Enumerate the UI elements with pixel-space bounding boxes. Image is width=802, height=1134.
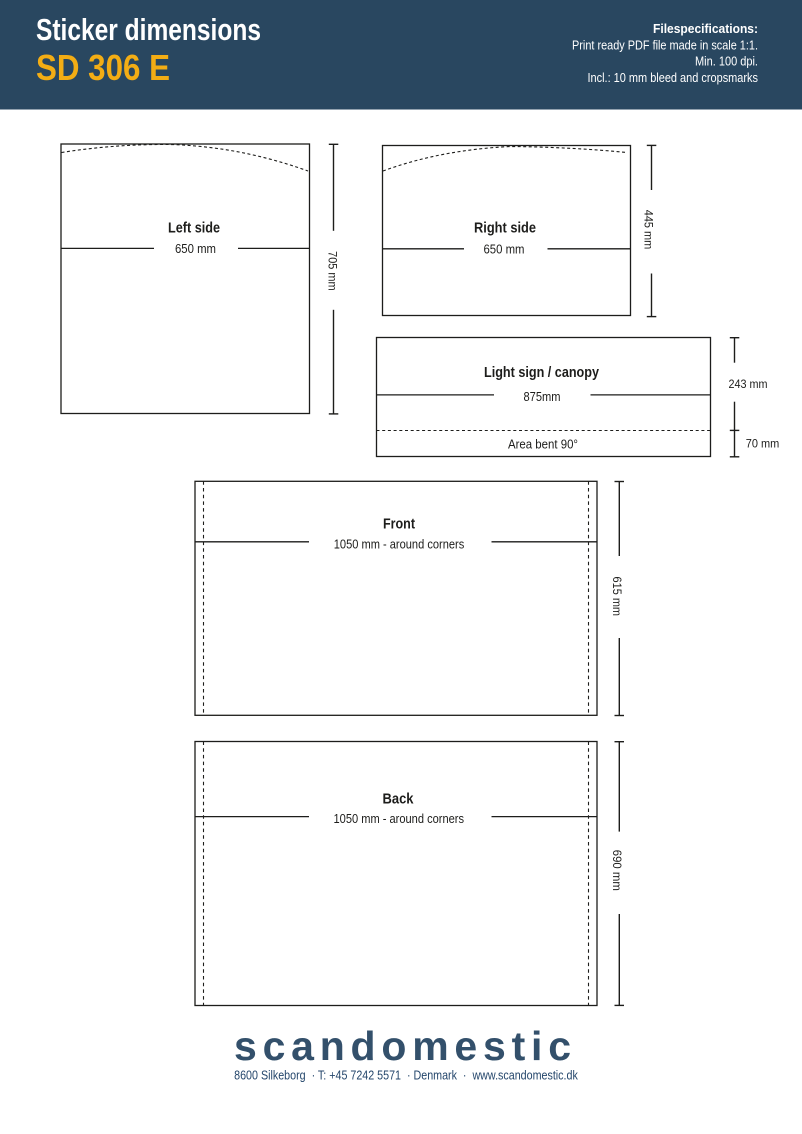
svg-text:SD 306 E: SD 306 E <box>36 47 170 88</box>
svg-text:875mm: 875mm <box>524 389 561 404</box>
svg-text:70 mm: 70 mm <box>746 437 780 451</box>
svg-text:Back: Back <box>383 790 415 807</box>
svg-text:690 mm: 690 mm <box>610 850 624 891</box>
svg-text:615 mm: 615 mm <box>610 577 624 617</box>
svg-text:Min. 100 dpi.: Min. 100 dpi. <box>695 55 758 69</box>
svg-text:650 mm: 650 mm <box>175 241 216 256</box>
svg-text:Filespecifications:: Filespecifications: <box>653 22 758 36</box>
svg-text:Front: Front <box>383 515 415 532</box>
svg-text:Incl.: 10 mm bleed and cropsma: Incl.: 10 mm bleed and cropsmarks <box>588 71 759 85</box>
svg-text:Area bent 90°: Area bent 90° <box>508 436 578 451</box>
svg-text:705 mm: 705 mm <box>325 251 339 291</box>
svg-text:1050 mm - around corners: 1050 mm - around corners <box>334 811 465 826</box>
svg-text:Sticker dimensions: Sticker dimensions <box>36 12 261 47</box>
svg-text:Light sign / canopy: Light sign / canopy <box>484 364 600 381</box>
svg-text:scandomestic: scandomestic <box>234 1023 571 1069</box>
svg-text:Right side: Right side <box>474 219 536 236</box>
svg-text:Left side: Left side <box>168 219 220 236</box>
svg-text:Print ready PDF file made in s: Print ready PDF file made in scale 1:1. <box>572 39 758 53</box>
svg-text:650 mm: 650 mm <box>484 241 525 256</box>
svg-text:1050 mm - around corners: 1050 mm - around corners <box>334 536 465 551</box>
svg-text:8600 Silkeborg · T: +45 7242: 8600 Silkeborg · T: +45 7242 5571 · Denm… <box>234 1068 578 1083</box>
svg-text:445 mm: 445 mm <box>642 210 656 250</box>
svg-text:243 mm: 243 mm <box>729 377 768 391</box>
